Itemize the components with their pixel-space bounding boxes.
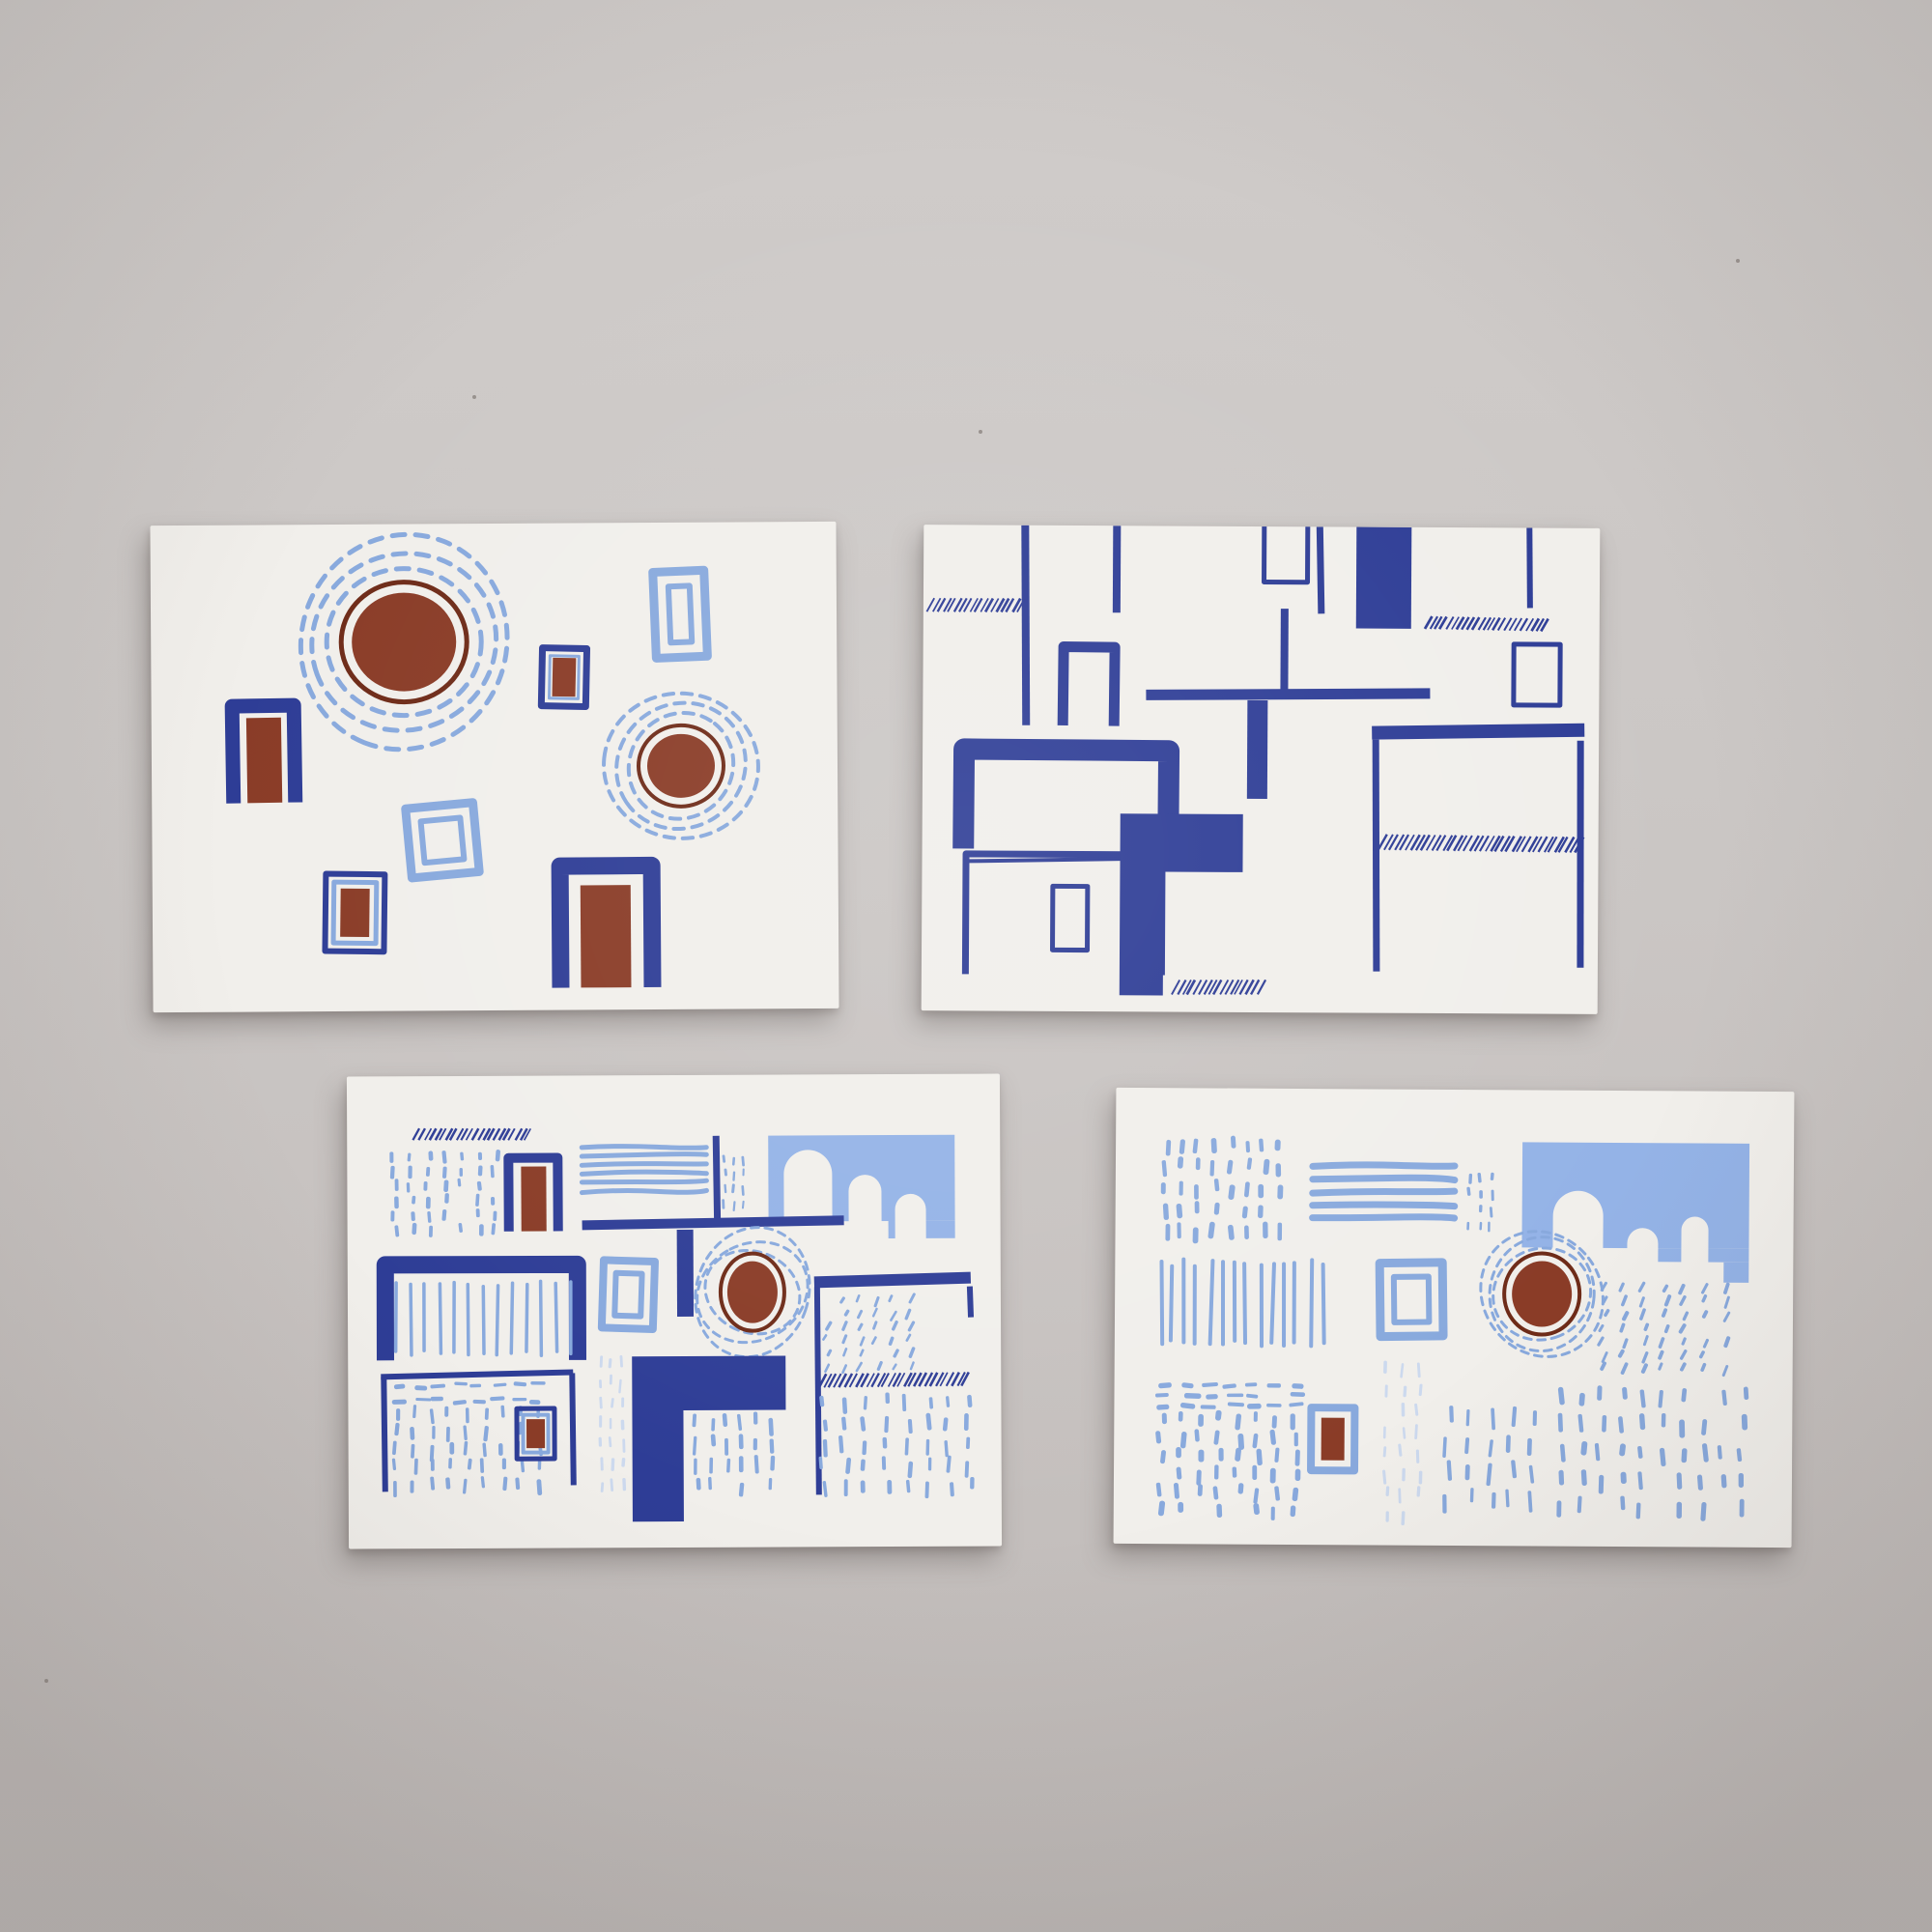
dust-speck — [1736, 259, 1740, 263]
dust-speck — [472, 395, 476, 399]
card-bottom-left-artwork — [347, 1074, 1002, 1549]
card-bottom-left — [347, 1074, 1002, 1549]
card-bottom-right-artwork — [1114, 1088, 1795, 1548]
card-top-left — [150, 522, 838, 1012]
card-top-left-artwork — [150, 522, 838, 1012]
card-top-right — [922, 525, 1601, 1014]
dust-speck — [44, 1679, 48, 1683]
card-top-right-artwork — [922, 525, 1601, 1014]
photo-of-art-cards — [0, 0, 1932, 1932]
dust-speck — [979, 430, 982, 434]
card-bottom-right — [1114, 1088, 1795, 1548]
